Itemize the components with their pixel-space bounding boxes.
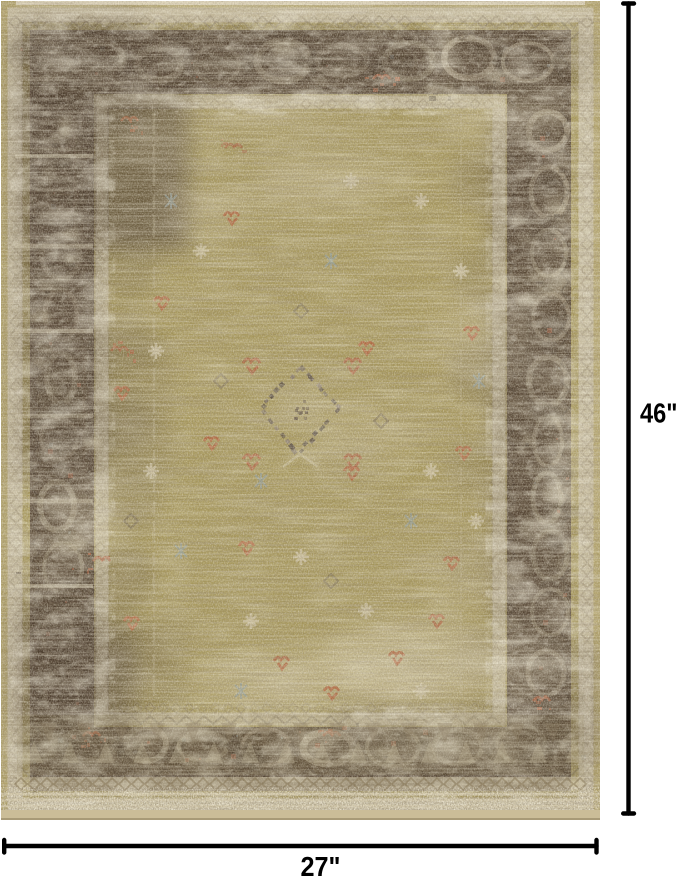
svg-text:27": 27" <box>301 851 341 876</box>
svg-text:46": 46" <box>640 398 678 429</box>
